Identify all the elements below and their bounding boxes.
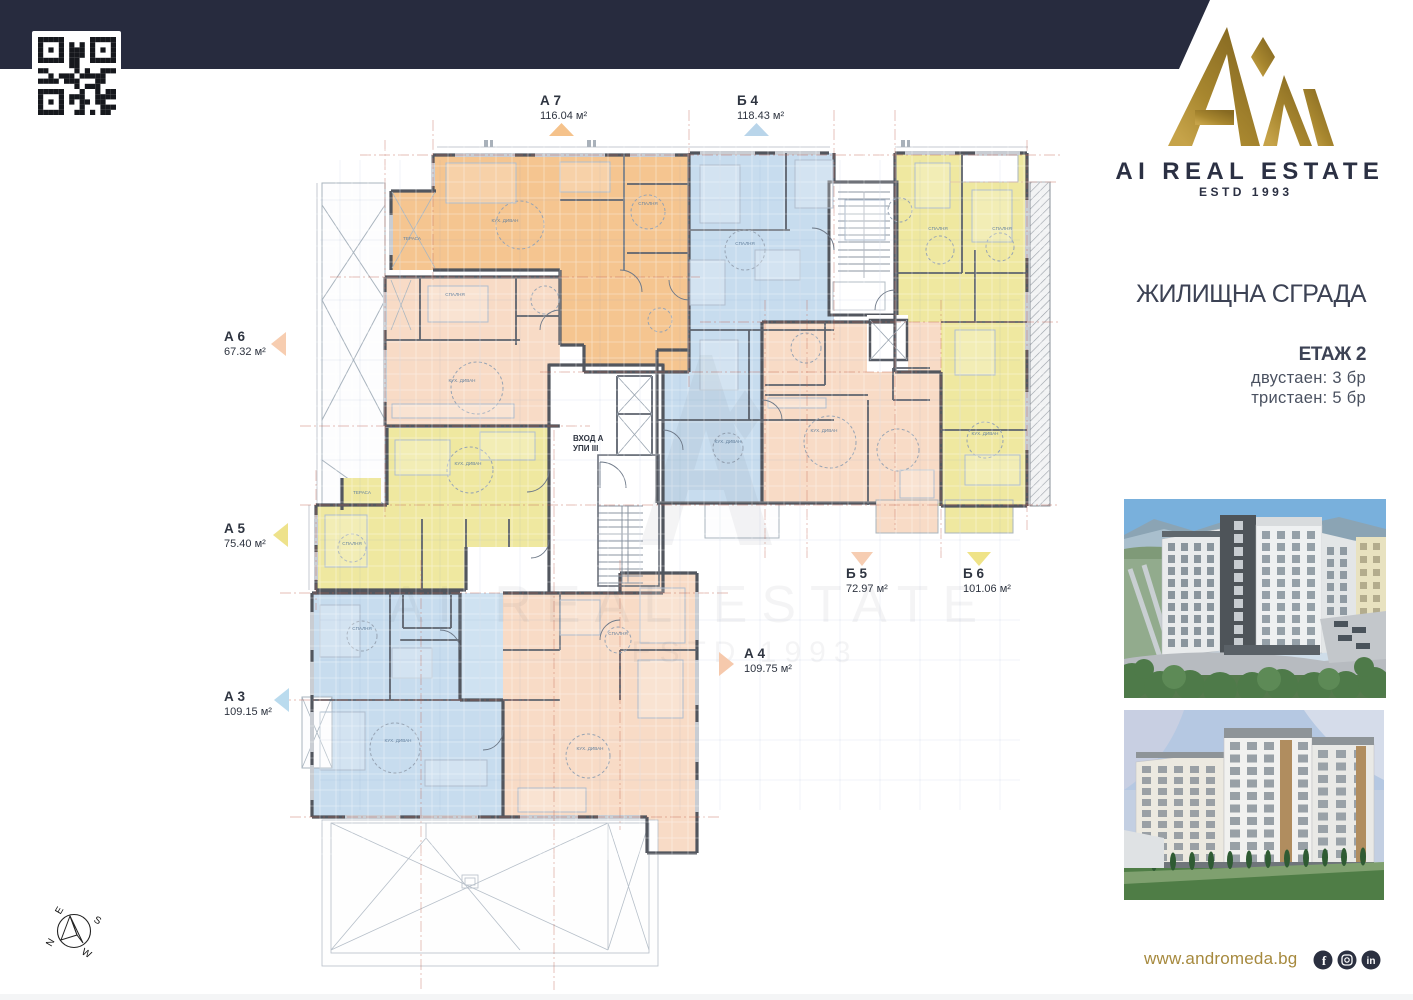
svg-text:f: f	[1322, 953, 1327, 968]
svg-text:СПАЛНЯ: СПАЛНЯ	[445, 292, 464, 297]
svg-text:А 3: А 3	[224, 689, 246, 704]
svg-text:Б 5: Б 5	[846, 566, 867, 581]
svg-text:А 6: А 6	[224, 329, 246, 344]
svg-text:А 4: А 4	[744, 646, 766, 661]
svg-text:КУХ. ДИВАН: КУХ. ДИВАН	[385, 738, 412, 743]
svg-text:109.15 м²: 109.15 м²	[224, 706, 272, 718]
svg-text:УПИ III: УПИ III	[573, 444, 598, 453]
svg-text:КУХ. ДИВАН: КУХ. ДИВАН	[811, 428, 838, 433]
svg-text:КУХ. ДИВАН: КУХ. ДИВАН	[455, 461, 482, 466]
svg-text:ТЕРАСА: ТЕРАСА	[403, 236, 422, 241]
svg-text:СПАЛНЯ: СПАЛНЯ	[352, 626, 371, 631]
svg-text:КУХ. ДИВАН: КУХ. ДИВАН	[972, 431, 999, 436]
svg-text:E: E	[53, 905, 66, 917]
svg-text:116.04 м²: 116.04 м²	[540, 110, 587, 122]
svg-text:А 5: А 5	[224, 521, 246, 536]
svg-text:in: in	[1367, 956, 1376, 967]
svg-text:Б 4: Б 4	[737, 93, 758, 108]
svg-text:КУХ. ДИВАН: КУХ. ДИВАН	[577, 746, 604, 751]
svg-text:СПАЛНЯ: СПАЛНЯ	[992, 226, 1011, 231]
svg-text:S: S	[92, 914, 104, 927]
svg-text:СПАЛНЯ: СПАЛНЯ	[735, 241, 754, 246]
svg-text:N: N	[44, 937, 57, 949]
svg-text:А 7: А 7	[540, 93, 561, 108]
svg-text:67.32 м²: 67.32 м²	[224, 346, 266, 358]
svg-text:ТЕРАСА: ТЕРАСА	[353, 490, 372, 495]
svg-text:СПАЛНЯ: СПАЛНЯ	[928, 226, 947, 231]
svg-text:75.40 м²: 75.40 м²	[224, 538, 266, 550]
svg-text:101.06 м²: 101.06 м²	[963, 583, 1011, 595]
svg-text:СПАЛНЯ: СПАЛНЯ	[638, 201, 657, 206]
svg-text:118.43 м²: 118.43 м²	[737, 110, 784, 122]
svg-text:КУХ. ДИВАН: КУХ. ДИВАН	[492, 218, 519, 223]
svg-text:AI REAL ESTATE: AI REAL ESTATE	[389, 576, 991, 634]
svg-text:СПАЛНЯ: СПАЛНЯ	[342, 541, 361, 546]
svg-text:Б 6: Б 6	[963, 566, 984, 581]
svg-text:W: W	[79, 947, 93, 962]
svg-text:ВХОД А: ВХОД А	[573, 434, 604, 443]
svg-text:72.97 м²: 72.97 м²	[846, 583, 888, 595]
svg-text:КУХ. ДИВАН: КУХ. ДИВАН	[449, 378, 476, 383]
svg-text:109.75 м²: 109.75 м²	[744, 663, 792, 675]
